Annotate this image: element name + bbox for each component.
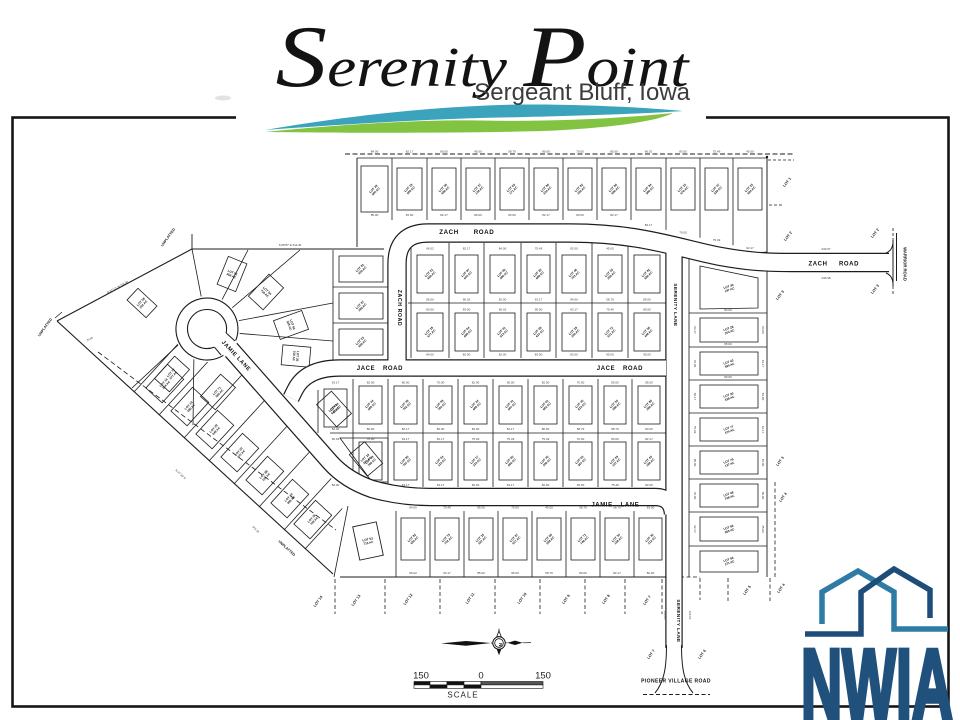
svg-text:ROAD: ROAD <box>474 229 495 236</box>
svg-text:45.00: 45.00 <box>761 525 765 533</box>
svg-text:63.17: 63.17 <box>443 571 451 575</box>
svg-text:85.00: 85.00 <box>477 571 485 575</box>
svg-text:63.17: 63.17 <box>570 308 578 312</box>
svg-text:82.00: 82.00 <box>647 571 655 575</box>
svg-text:82.17: 82.17 <box>440 213 448 217</box>
svg-text:83.00: 83.00 <box>535 353 543 357</box>
svg-text:82.00: 82.00 <box>499 298 507 302</box>
svg-text:80.00: 80.00 <box>440 149 448 153</box>
svg-text:82.17: 82.17 <box>693 393 697 401</box>
svg-text:95.00: 95.00 <box>693 459 697 467</box>
svg-text:Sergeant Bluff, Iowa: Sergeant Bluff, Iowa <box>474 79 690 106</box>
svg-text:236.98: 236.98 <box>821 276 831 280</box>
svg-text:82.00: 82.00 <box>542 381 550 385</box>
svg-text:58.79: 58.79 <box>611 427 619 431</box>
svg-text:85.00: 85.00 <box>645 381 653 385</box>
svg-text:150: 150 <box>535 671 551 682</box>
svg-text:63.17: 63.17 <box>507 483 515 487</box>
svg-text:85.00: 85.00 <box>371 213 379 217</box>
svg-text:82.17: 82.17 <box>402 427 410 431</box>
svg-text:SERENITY LANE: SERENITY LANE <box>673 283 678 326</box>
svg-text:66.02: 66.02 <box>499 308 507 312</box>
svg-text:75.49: 75.49 <box>606 308 614 312</box>
svg-text:ROAD: ROAD <box>623 366 643 372</box>
svg-text:ZACH ROAD: ZACH ROAD <box>396 290 402 327</box>
svg-text:84.00: 84.00 <box>570 298 578 302</box>
svg-text:160.00: 160.00 <box>688 611 692 620</box>
svg-text:58.79: 58.79 <box>508 149 516 153</box>
svg-text:S 89°57' E 312.40: S 89°57' E 312.40 <box>279 243 302 247</box>
svg-text:45.00: 45.00 <box>406 213 414 217</box>
svg-text:84.00: 84.00 <box>371 149 379 153</box>
svg-text:70.00: 70.00 <box>679 231 687 235</box>
svg-text:82.00: 82.00 <box>332 483 340 487</box>
svg-text:66.02: 66.02 <box>426 247 434 251</box>
svg-text:63.17: 63.17 <box>693 326 697 334</box>
svg-text:80.00: 80.00 <box>542 149 550 153</box>
svg-text:82.00: 82.00 <box>437 427 445 431</box>
svg-text:83.00: 83.00 <box>426 308 434 312</box>
svg-text:75.49: 75.49 <box>535 247 543 251</box>
svg-text:70.00: 70.00 <box>576 149 584 153</box>
svg-text:95.00: 95.00 <box>606 353 614 357</box>
svg-text:45.00: 45.00 <box>577 483 585 487</box>
svg-text:80.00: 80.00 <box>367 427 375 431</box>
svg-text:85.00: 85.00 <box>610 149 618 153</box>
svg-text:82.00: 82.00 <box>570 247 578 251</box>
svg-text:63.17: 63.17 <box>402 437 410 441</box>
svg-text:45.00: 45.00 <box>474 149 482 153</box>
svg-text:82.17: 82.17 <box>613 571 621 575</box>
svg-text:66.02: 66.02 <box>332 437 340 441</box>
svg-text:85.00: 85.00 <box>611 381 619 385</box>
svg-text:82.17: 82.17 <box>542 213 550 217</box>
svg-text:63.17: 63.17 <box>332 381 340 385</box>
svg-text:82.00: 82.00 <box>542 483 550 487</box>
svg-text:75.49: 75.49 <box>611 483 619 487</box>
svg-text:84.00: 84.00 <box>499 247 507 251</box>
svg-text:82.17: 82.17 <box>406 149 414 153</box>
svg-text:58.79: 58.79 <box>545 571 553 575</box>
svg-text:85.00: 85.00 <box>643 298 651 302</box>
svg-text:150: 150 <box>413 671 429 682</box>
svg-text:75.49: 75.49 <box>542 437 550 441</box>
svg-text:80.00: 80.00 <box>643 308 651 312</box>
svg-text:160.00: 160.00 <box>663 611 667 620</box>
svg-text:75.49: 75.49 <box>693 426 697 434</box>
svg-text:58.79: 58.79 <box>606 298 614 302</box>
svg-text:JAMIE: JAMIE <box>591 503 612 509</box>
svg-text:62.17: 62.17 <box>507 427 515 431</box>
svg-text:75.49: 75.49 <box>713 238 721 242</box>
svg-text:0: 0 <box>478 671 483 682</box>
svg-text:82.00: 82.00 <box>367 381 375 385</box>
svg-text:82.17: 82.17 <box>610 213 618 217</box>
svg-text:70.00: 70.00 <box>693 360 697 368</box>
svg-text:83.00: 83.00 <box>679 149 687 153</box>
svg-text:JACE: JACE <box>597 366 615 372</box>
svg-text:WARRIOR ROAD: WARRIOR ROAD <box>903 247 908 281</box>
svg-text:62.17: 62.17 <box>437 437 445 441</box>
svg-text:95.00: 95.00 <box>507 381 515 385</box>
svg-text:82.17: 82.17 <box>645 437 653 441</box>
svg-text:95.00: 95.00 <box>511 571 519 575</box>
svg-text:63.17: 63.17 <box>535 298 543 302</box>
svg-text:233.67: 233.67 <box>821 247 831 251</box>
svg-text:80.00: 80.00 <box>761 492 765 500</box>
svg-text:82.00: 82.00 <box>570 353 578 357</box>
svg-text:LANE: LANE <box>621 503 640 509</box>
svg-text:95.00: 95.00 <box>643 353 651 357</box>
svg-text:83.00: 83.00 <box>576 213 584 217</box>
svg-text:45.00: 45.00 <box>761 459 765 467</box>
svg-text:84.00: 84.00 <box>724 308 732 312</box>
svg-text:84.00: 84.00 <box>409 506 417 510</box>
svg-text:NWIA: NWIA <box>801 629 953 720</box>
svg-text:85.00: 85.00 <box>426 298 434 302</box>
svg-text:58.79: 58.79 <box>577 427 585 431</box>
svg-text:70.00: 70.00 <box>437 381 445 385</box>
svg-text:63.17: 63.17 <box>761 426 765 434</box>
svg-text:45.00: 45.00 <box>746 149 754 153</box>
svg-text:83.00: 83.00 <box>724 375 732 379</box>
svg-text:82.00: 82.00 <box>645 483 653 487</box>
svg-text:75.49: 75.49 <box>713 149 721 153</box>
svg-text:66.02: 66.02 <box>463 298 471 302</box>
svg-text:62.17: 62.17 <box>693 525 697 533</box>
svg-text:80.00: 80.00 <box>402 381 410 385</box>
svg-text:75.49: 75.49 <box>472 437 480 441</box>
svg-text:ROAD: ROAD <box>839 262 859 268</box>
svg-text:83.00: 83.00 <box>761 393 765 401</box>
svg-text:82.00: 82.00 <box>499 353 507 357</box>
svg-text:ZACH: ZACH <box>808 262 827 268</box>
svg-text:62.17: 62.17 <box>746 246 754 250</box>
svg-text:63.17: 63.17 <box>437 483 445 487</box>
svg-text:SCALE: SCALE <box>447 691 478 700</box>
svg-text:ZACH: ZACH <box>439 229 459 236</box>
svg-text:SERENITY LANE: SERENITY LANE <box>676 599 681 642</box>
svg-text:83.00: 83.00 <box>463 308 471 312</box>
svg-text:82.00: 82.00 <box>472 381 480 385</box>
svg-text:63.17: 63.17 <box>761 360 765 368</box>
svg-text:ROAD: ROAD <box>383 366 403 372</box>
svg-text:45.00: 45.00 <box>606 247 614 251</box>
svg-text:84.00: 84.00 <box>761 326 765 334</box>
svg-text:84.00: 84.00 <box>332 427 340 431</box>
svg-text:82.00: 82.00 <box>463 353 471 357</box>
svg-text:70.00: 70.00 <box>577 437 585 441</box>
svg-text:84.00: 84.00 <box>472 427 480 431</box>
svg-text:83.00: 83.00 <box>645 427 653 431</box>
svg-text:80.00: 80.00 <box>542 427 550 431</box>
svg-text:JACE: JACE <box>357 366 375 372</box>
svg-text:66.02: 66.02 <box>409 571 417 575</box>
svg-text:82.17: 82.17 <box>463 247 471 251</box>
svg-text:80.00: 80.00 <box>474 213 482 217</box>
svg-text:70.00: 70.00 <box>577 381 585 385</box>
svg-text:66.02: 66.02 <box>645 149 653 153</box>
svg-text:66.02: 66.02 <box>472 483 480 487</box>
svg-text:83.00: 83.00 <box>508 213 516 217</box>
svg-text:82.17: 82.17 <box>645 223 653 227</box>
svg-text:95.00: 95.00 <box>724 342 732 346</box>
svg-text:83.00: 83.00 <box>611 437 619 441</box>
svg-text:70.00: 70.00 <box>693 492 697 500</box>
svg-text:95.00: 95.00 <box>535 308 543 312</box>
svg-text:75.49: 75.49 <box>507 437 515 441</box>
svg-text:84.00: 84.00 <box>426 353 434 357</box>
svg-text:PIONEER VILLAGE ROAD: PIONEER VILLAGE ROAD <box>641 679 711 685</box>
svg-text:80.00: 80.00 <box>579 571 587 575</box>
